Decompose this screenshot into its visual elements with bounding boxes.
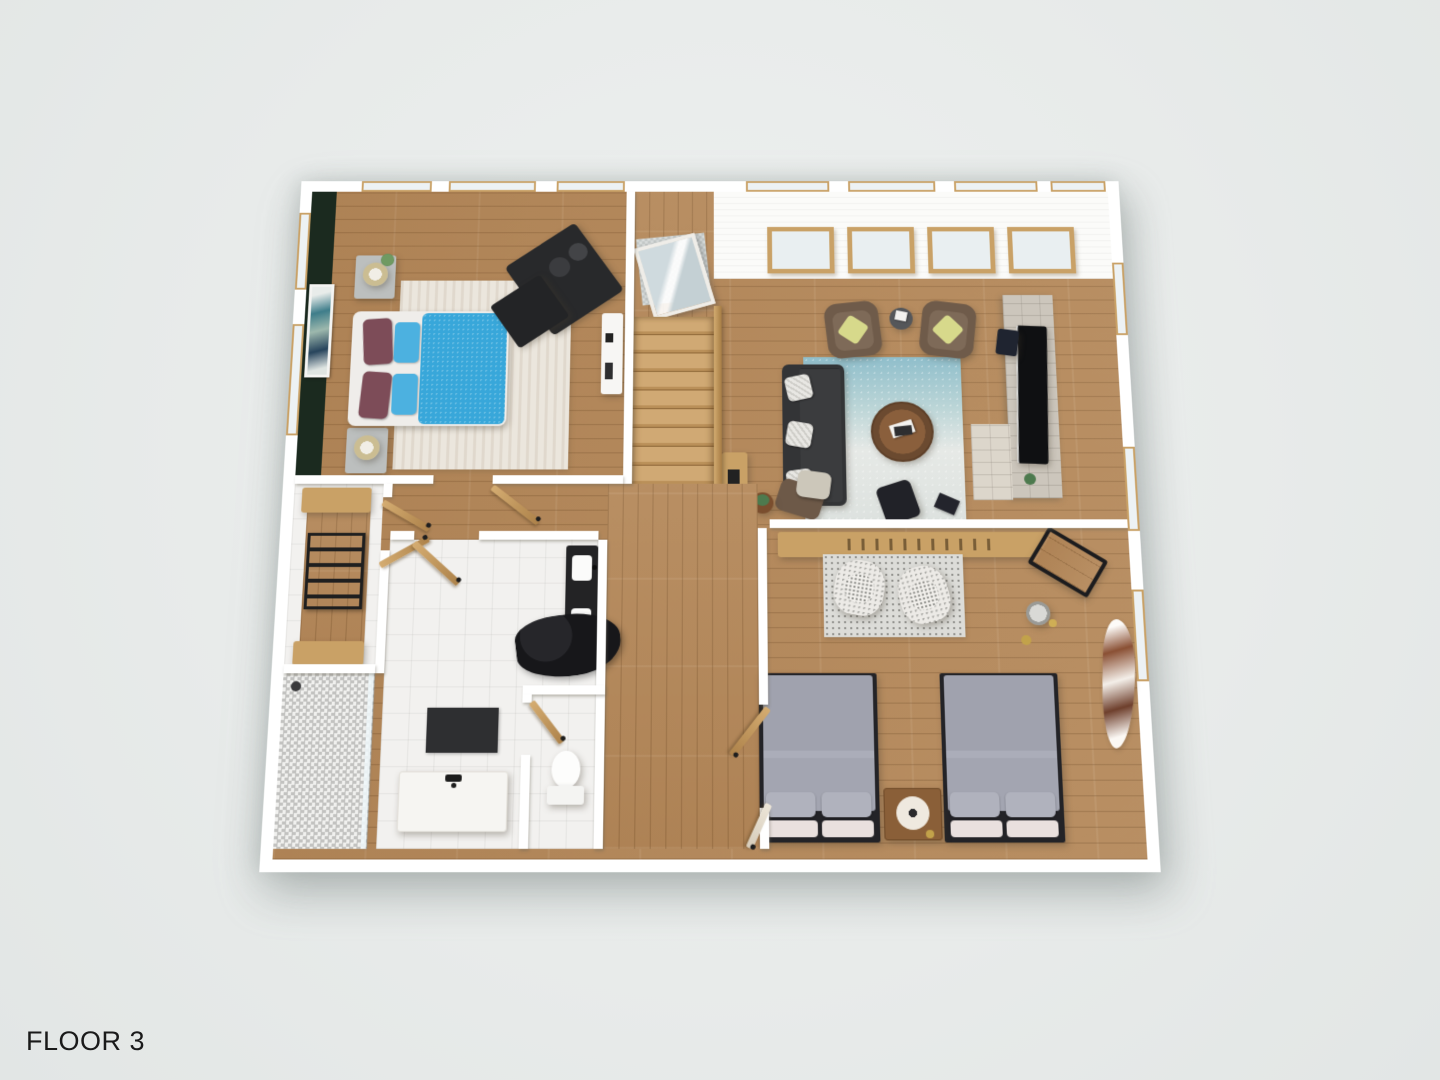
bed-guest [939, 673, 1065, 842]
dresser [601, 313, 623, 394]
bed-guest [759, 673, 881, 842]
armchair [918, 299, 977, 360]
bed-master [347, 311, 509, 426]
pillow-pink [950, 820, 1002, 837]
pillow-gray [821, 792, 871, 817]
floorplan-render: FLOOR 3 [0, 0, 1440, 1080]
desk-top [1033, 532, 1103, 593]
wall-bedroom-bottom [295, 475, 434, 484]
pillow-gray [949, 792, 1000, 817]
wall-bedroom-bottom [493, 475, 624, 484]
wall-bathroom-top [390, 531, 414, 540]
window [557, 181, 625, 192]
floor-plan [259, 181, 1161, 872]
decor-box [894, 310, 907, 321]
accent-chair-seat [906, 578, 943, 614]
console-decor [728, 469, 740, 484]
closet-shelf [301, 488, 372, 513]
potted-plant [756, 494, 770, 506]
pillow-pink [822, 820, 874, 837]
decor-tray [896, 796, 930, 830]
cowhide-rug [1101, 618, 1135, 749]
room-living [714, 192, 1127, 520]
wall-living-bottom [770, 519, 1128, 528]
sink-faucet [592, 565, 597, 570]
window [746, 181, 829, 192]
pillow-maroon [363, 318, 393, 366]
wall-art [304, 284, 334, 377]
toilet-tank [547, 786, 585, 805]
wall-closet-bottom [284, 664, 376, 673]
sofa-pillow [784, 373, 814, 402]
coffee-table-books [894, 425, 913, 436]
skylight-window [1007, 227, 1076, 273]
wall-closet-right [383, 484, 393, 497]
window [449, 181, 536, 192]
armchair [823, 300, 884, 360]
room-bedroom-2 [758, 528, 1147, 849]
bath-mat-dark [426, 708, 499, 753]
coffee-table [870, 402, 934, 462]
decor-gold [926, 830, 935, 838]
hallway-corridor [603, 484, 760, 849]
sink-basin [572, 555, 592, 580]
accent-chair-seat [842, 571, 876, 605]
duvet-gray [763, 675, 876, 811]
pillow-blue [391, 374, 418, 415]
pillow-gray [1005, 792, 1056, 817]
pillow-pink [766, 820, 818, 837]
sideboard-slats [847, 539, 997, 551]
floor-label: FLOOR 3 [26, 1026, 145, 1057]
decor-gold [1049, 619, 1057, 627]
window [954, 181, 1038, 192]
vanity-counter [397, 771, 509, 832]
window [361, 181, 432, 192]
tv-screen [1016, 325, 1049, 464]
room-master-bedroom [295, 192, 626, 476]
pillow-maroon [358, 371, 393, 419]
lounge-chair-cushion [795, 469, 832, 500]
wall-bedroom2-left [758, 528, 768, 705]
shower-floor [273, 673, 375, 849]
wire-basket [1026, 601, 1051, 625]
window [1050, 181, 1105, 192]
vanity-faucet [445, 774, 462, 781]
decor-gold [1021, 635, 1032, 645]
skylight-window [927, 227, 996, 273]
window [848, 181, 935, 192]
ottoman [995, 328, 1019, 356]
sofa-pillow [785, 420, 814, 448]
potted-plant [1024, 473, 1036, 484]
vanity-faucet [451, 783, 456, 788]
skylight-window [767, 227, 834, 273]
wall-wc-top [523, 685, 606, 694]
dresser-decor [605, 333, 613, 342]
duvet-gray [944, 675, 1060, 811]
pillow-blue [393, 322, 420, 362]
skylight-window [847, 227, 915, 273]
stone-hearth [971, 424, 1013, 500]
wall-bathroom-top [479, 531, 599, 540]
pillow-gray [766, 792, 816, 817]
duvet-blue [418, 313, 508, 424]
dresser-decor [605, 363, 613, 380]
pillow-pink [1006, 820, 1059, 837]
